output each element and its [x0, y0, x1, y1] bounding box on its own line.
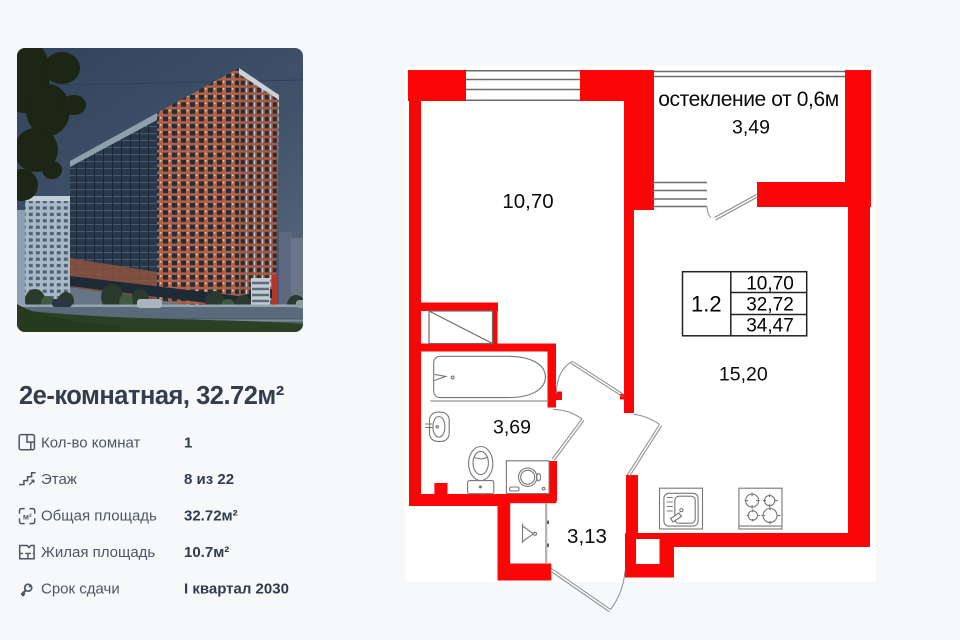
svg-text:I квартал 2030: I квартал 2030 — [184, 581, 289, 598]
svg-text:Этаж: Этаж — [41, 471, 77, 488]
svg-text:34,47: 34,47 — [746, 315, 794, 336]
svg-text:10.7м²: 10.7м² — [184, 544, 229, 561]
svg-text:Общая площадь: Общая площадь — [41, 508, 157, 525]
svg-text:10,70: 10,70 — [746, 273, 794, 294]
svg-text:15,20: 15,20 — [719, 364, 768, 386]
svg-text:10,70: 10,70 — [502, 190, 553, 213]
svg-text:м²: м² — [23, 512, 32, 521]
svg-text:32,72: 32,72 — [746, 294, 794, 315]
svg-text:1: 1 — [184, 435, 192, 452]
svg-text:остекление от 0,6м: остекление от 0,6м — [658, 88, 839, 111]
svg-text:3,13: 3,13 — [567, 525, 607, 548]
svg-text:1.2: 1.2 — [691, 292, 722, 317]
svg-text:8 из 22: 8 из 22 — [184, 471, 234, 488]
svg-text:3,49: 3,49 — [732, 117, 770, 139]
svg-text:2е-комнатная, 32.72м²: 2е-комнатная, 32.72м² — [19, 382, 284, 410]
svg-text:Жилая площадь: Жилая площадь — [41, 544, 155, 561]
svg-text:Срок сдачи: Срок сдачи — [41, 581, 120, 598]
svg-text:32.72м²: 32.72м² — [184, 508, 238, 525]
svg-text:Кол-во комнат: Кол-во комнат — [41, 435, 140, 452]
svg-text:3,69: 3,69 — [493, 417, 531, 439]
